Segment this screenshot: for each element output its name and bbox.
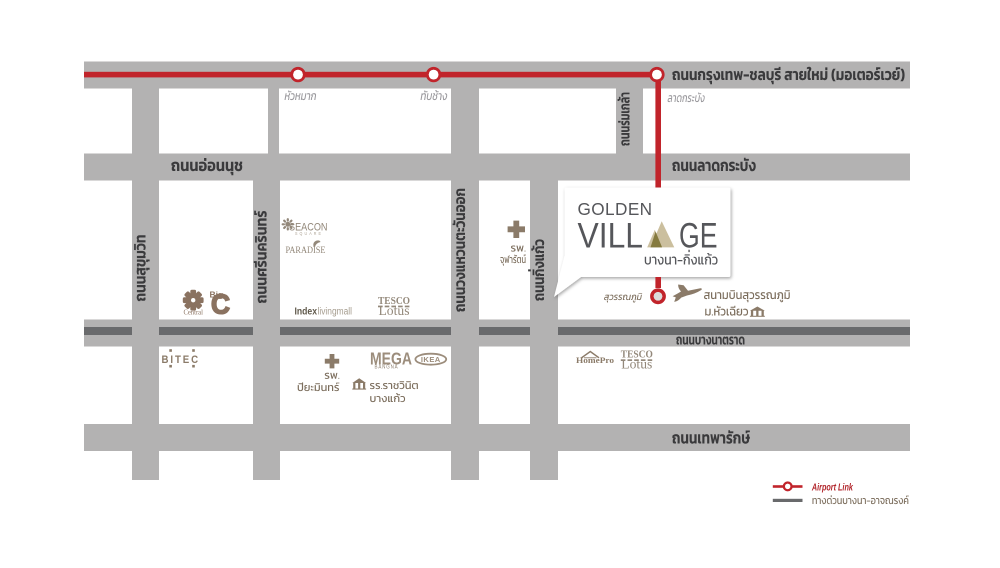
svg-text:HomePro: HomePro bbox=[576, 356, 614, 365]
svg-text:Index: Index bbox=[295, 307, 318, 318]
svg-text:IKEA: IKEA bbox=[421, 355, 441, 364]
svg-text:livingmall: livingmall bbox=[318, 307, 353, 318]
svg-text:VILL: VILL bbox=[578, 217, 644, 256]
svg-text:Central: Central bbox=[183, 308, 203, 317]
svg-text:BITEC: BITEC bbox=[162, 354, 201, 366]
svg-text:GE: GE bbox=[679, 217, 718, 256]
svg-text:Lotus: Lotus bbox=[379, 303, 410, 318]
svg-text:Airport Link: Airport Link bbox=[811, 482, 853, 493]
svg-text:SQUARE: SQUARE bbox=[295, 231, 323, 236]
svg-text:C: C bbox=[211, 289, 230, 320]
svg-text:Lotus: Lotus bbox=[621, 357, 652, 372]
svg-text:BANGNA: BANGNA bbox=[375, 365, 399, 371]
svg-text:PARADISE: PARADISE bbox=[286, 245, 326, 256]
